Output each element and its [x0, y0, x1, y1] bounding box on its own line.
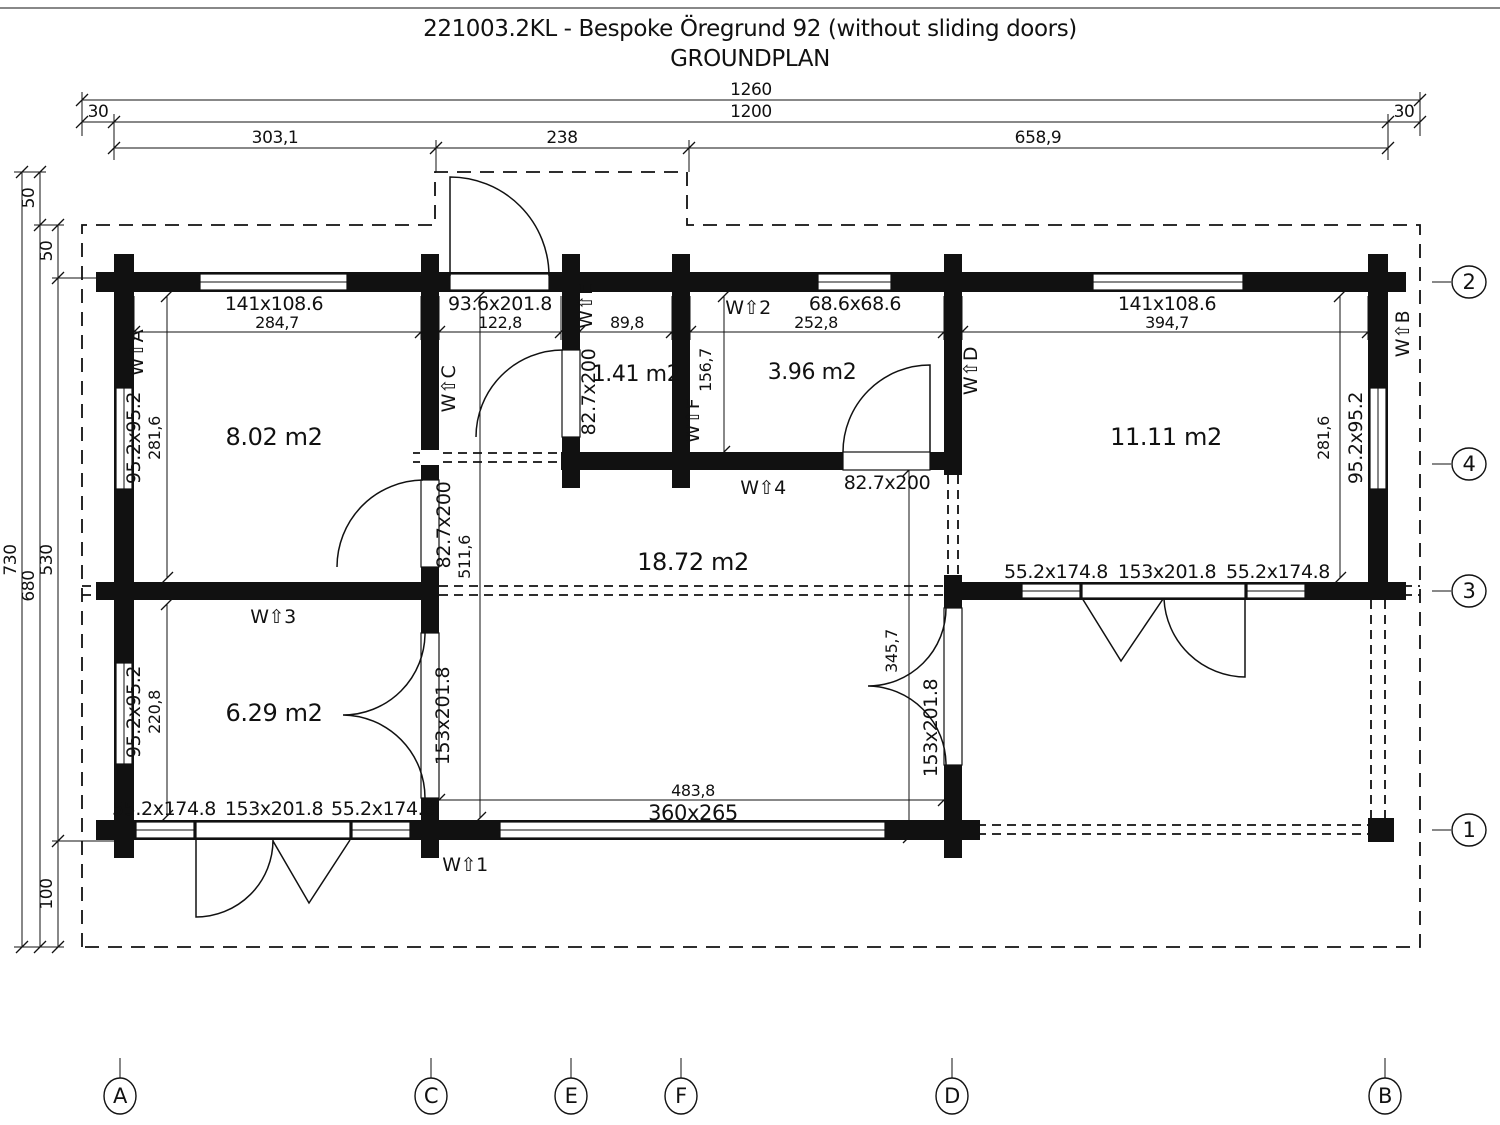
dim-e-f: 89,8: [610, 313, 644, 332]
grid-leaders-bottom: [120, 1058, 1385, 1078]
door-row3: [1082, 584, 1245, 598]
wall-c-gap: [420, 450, 440, 465]
page-subtitle: GROUNDPLAN: [670, 46, 830, 72]
dim-seg-right: 658,9: [1015, 128, 1062, 148]
room-top-left: 8.02 m2: [226, 423, 323, 451]
grid-row-3: 3: [1463, 579, 1476, 603]
marker-w1: W⇧1: [442, 854, 488, 876]
room-bottom-left: 6.29 m2: [226, 699, 323, 727]
grid-col-c: C: [424, 1084, 438, 1108]
wall-row3-left: [114, 582, 439, 600]
room-mid: 3.96 m2: [768, 360, 857, 385]
page-title: 221003.2KL - Bespoke Öregrund 92 (withou…: [423, 14, 1077, 42]
dimension-labels: 1260 30 1200 30 303,1 238 658,9 730 680 …: [1, 80, 1414, 910]
dim-wc: 156,7: [696, 348, 715, 392]
label-bottom-door: 153x201.8: [225, 798, 323, 820]
marker-w3: W⇧3: [250, 606, 296, 628]
dim-seg-left: 303,1: [252, 128, 299, 148]
main-entrance-door: [450, 274, 549, 290]
dim-left-overall: 730: [1, 544, 21, 575]
label-main-door: 93.6x201.8: [448, 293, 552, 315]
label-win-top-left: 141x108.6: [225, 293, 323, 315]
door-bottom: [196, 822, 350, 838]
marker-wf: W⇧F: [682, 399, 704, 443]
dim-bottom-opening: 483,8: [671, 781, 715, 800]
windows: [116, 274, 1386, 838]
dim-left-deck: 100: [37, 878, 57, 909]
grid-col-d: D: [944, 1084, 960, 1108]
door-c-lower-swing: [343, 633, 425, 798]
dim-overall: 1260: [730, 80, 772, 100]
dim-seg-mid: 238: [546, 128, 577, 148]
label-right-win-left: 55.2x174.8: [1004, 561, 1108, 583]
dim-right-room: 281,6: [1314, 416, 1333, 460]
main-door-swing: [450, 177, 549, 276]
grid-bubbles: A C E F D B 2 4 3 1: [104, 266, 1486, 1114]
dim-margin-left: 30: [88, 102, 109, 122]
porch-bottom-dashed: [962, 825, 1368, 834]
door-e-swing: [476, 350, 563, 437]
log-end-stubs: [96, 254, 1406, 858]
label-win-left-top: 95.2x95.2: [123, 392, 145, 484]
dim-left-canopy: 50: [19, 188, 39, 209]
floorplan-canvas: 221003.2KL - Bespoke Öregrund 92 (withou…: [0, 0, 1500, 1125]
row3-dashed-line: [439, 586, 944, 595]
room-small: 1.41 m2: [592, 362, 681, 387]
dim-left-wall: 530: [37, 544, 57, 575]
dim-corridor: 511,6: [455, 535, 474, 579]
marker-wb: W⇧B: [1392, 311, 1414, 358]
label-door-hall: 82.7x200: [844, 472, 931, 494]
label-bottom-win-right: 55.2x174.8: [331, 798, 435, 820]
porch-right-dashed: [1371, 600, 1385, 818]
wall-d-gap: [943, 475, 963, 575]
label-right-door: 153x201.8: [1118, 561, 1216, 583]
dim-c-e: 122,8: [478, 313, 522, 332]
grid-row-2: 2: [1463, 270, 1476, 294]
marker-we: W⇧E: [575, 283, 597, 329]
marker-wa: W⇧A: [126, 329, 148, 376]
label-door-d-lower: 153x201.8: [920, 679, 942, 777]
label-door-c: 82.7x200: [433, 482, 455, 569]
marker-wd: W⇧D: [960, 347, 982, 395]
grid-leaders-right: [1432, 282, 1451, 830]
grid-col-f: F: [675, 1084, 687, 1108]
dim-inner: 1200: [730, 102, 772, 122]
label-win-right: 95.2x95.2: [1345, 392, 1367, 484]
grid-col-b: B: [1378, 1084, 1392, 1108]
door-hall: [843, 452, 930, 470]
dim-left-bottom-room: 220,8: [145, 690, 164, 734]
label-right-win-right: 55.2x174.8: [1226, 561, 1330, 583]
dim-hall: 345,7: [882, 629, 901, 673]
door-bottom-swing: [196, 840, 350, 917]
label-bottom-win-left: 55.2x174.8: [112, 798, 216, 820]
dim-left-eave: 50: [37, 241, 57, 262]
grid-col-a: A: [113, 1084, 128, 1108]
grid-col-e: E: [565, 1084, 578, 1108]
walls: [96, 254, 1406, 858]
dim-margin-right: 30: [1394, 102, 1415, 122]
label-win-top-right: 141x108.6: [1118, 293, 1216, 315]
label-win-top-small: 68.6x68.6: [809, 293, 901, 315]
marker-wc: W⇧C: [438, 365, 460, 412]
room-top-right: 11.11 m2: [1110, 423, 1222, 451]
grid-row-1: 1: [1463, 818, 1476, 842]
dim-a-c: 284,7: [255, 313, 299, 332]
door-row3-swing: [1082, 598, 1245, 677]
dim-f-d: 252,8: [794, 313, 838, 332]
door-d-lower: [944, 608, 962, 765]
grid-row-4: 4: [1463, 452, 1476, 476]
room-main: 18.72 m2: [637, 548, 749, 576]
dim-left-body: 680: [19, 570, 39, 601]
label-door-c-lower: 153x201.8: [432, 667, 454, 765]
label-win-left-bottom: 95.2x95.2: [123, 666, 145, 758]
dim-d-b: 394,7: [1145, 313, 1189, 332]
marker-w2: W⇧2: [725, 297, 771, 319]
groundplan-drawing: 221003.2KL - Bespoke Öregrund 92 (withou…: [0, 0, 1500, 1125]
marker-w4: W⇧4: [740, 477, 786, 499]
dim-left-top-room: 281,6: [145, 416, 164, 460]
label-opening-360: 360x265: [648, 801, 738, 825]
door-c-swing: [337, 480, 423, 567]
